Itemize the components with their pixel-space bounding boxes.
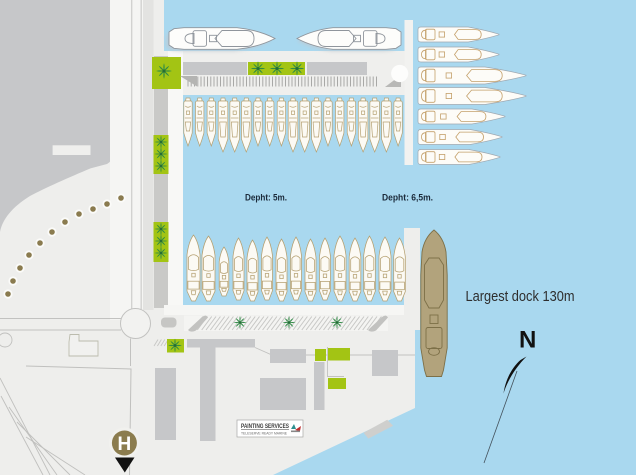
svg-text:TELESERVE READY MARINE: TELESERVE READY MARINE — [241, 432, 288, 436]
svg-text:Depht: 5m.: Depht: 5m. — [245, 193, 287, 204]
svg-text:N: N — [519, 327, 536, 354]
svg-text:H: H — [118, 434, 132, 455]
svg-text:Largest dock 130m: Largest dock 130m — [466, 288, 575, 305]
svg-text:PAINTING SERVICES: PAINTING SERVICES — [241, 423, 289, 430]
svg-text:Depht: 6,5m.: Depht: 6,5m. — [382, 193, 433, 204]
